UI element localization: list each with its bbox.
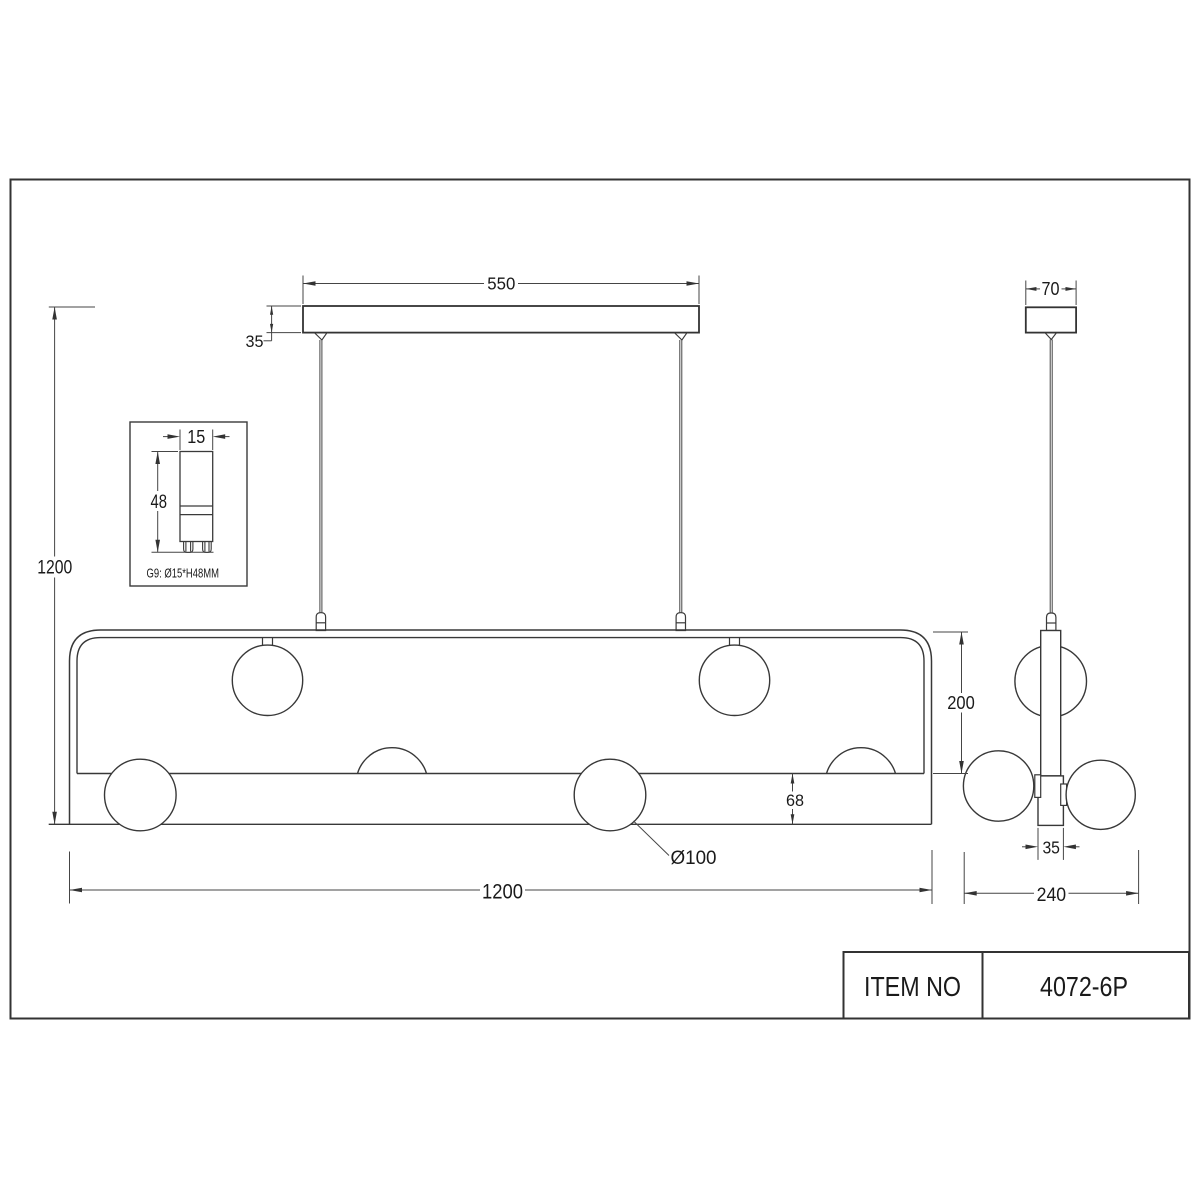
svg-text:550: 550	[487, 274, 515, 294]
svg-text:68: 68	[786, 792, 804, 810]
svg-text:1200: 1200	[37, 558, 72, 579]
svg-text:35: 35	[1042, 837, 1060, 857]
svg-text:35: 35	[246, 332, 264, 351]
svg-text:48: 48	[151, 491, 168, 513]
svg-text:ITEM NO: ITEM NO	[864, 971, 961, 1002]
svg-text:G9: Ø15*H48MM: G9: Ø15*H48MM	[147, 566, 220, 581]
svg-text:15: 15	[187, 427, 205, 447]
svg-text:240: 240	[1037, 885, 1067, 906]
svg-text:200: 200	[947, 693, 975, 713]
svg-text:1200: 1200	[482, 881, 523, 904]
svg-text:70: 70	[1042, 279, 1060, 299]
svg-text:Ø100: Ø100	[671, 848, 717, 869]
svg-text:4072-6P: 4072-6P	[1040, 971, 1128, 1002]
